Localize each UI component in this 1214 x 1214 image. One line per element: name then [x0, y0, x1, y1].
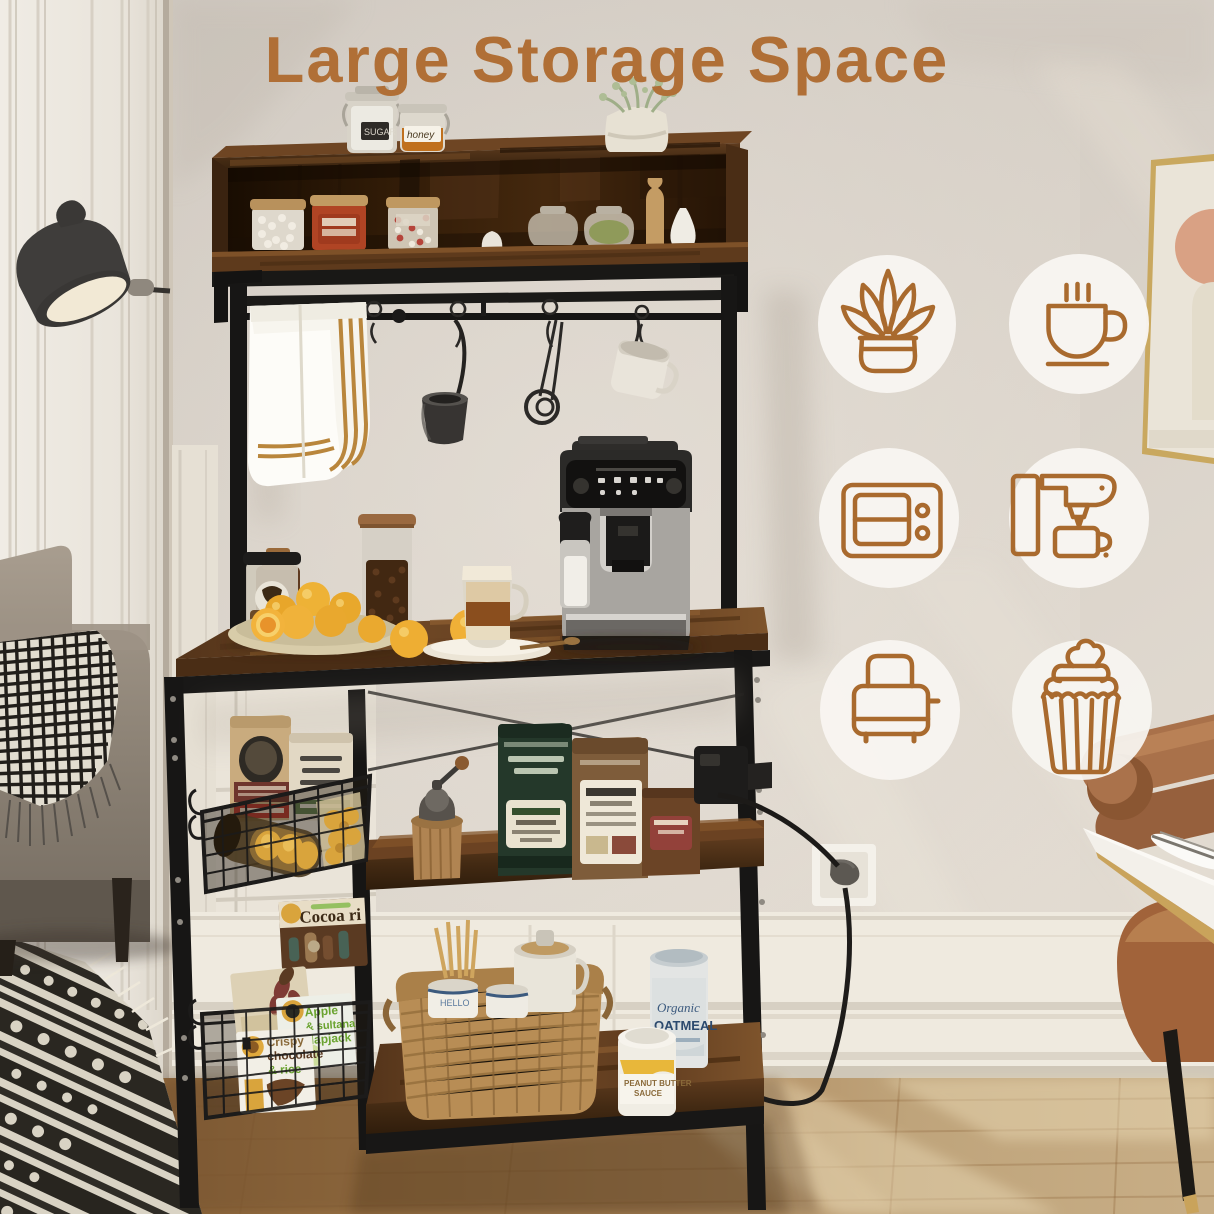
svg-text:SUGAR: SUGAR	[364, 127, 397, 137]
svg-text:PEANUT BUTTER: PEANUT BUTTER	[624, 1079, 692, 1088]
svg-text:Large Storage Space: Large Storage Space	[265, 23, 950, 96]
svg-text:honey: honey	[407, 130, 435, 141]
svg-text:Cocoa ri: Cocoa ri	[299, 905, 362, 927]
svg-text:HELLO: HELLO	[440, 998, 470, 1008]
svg-text:Organic: Organic	[657, 1000, 700, 1015]
svg-text:SAUCE: SAUCE	[634, 1089, 663, 1098]
